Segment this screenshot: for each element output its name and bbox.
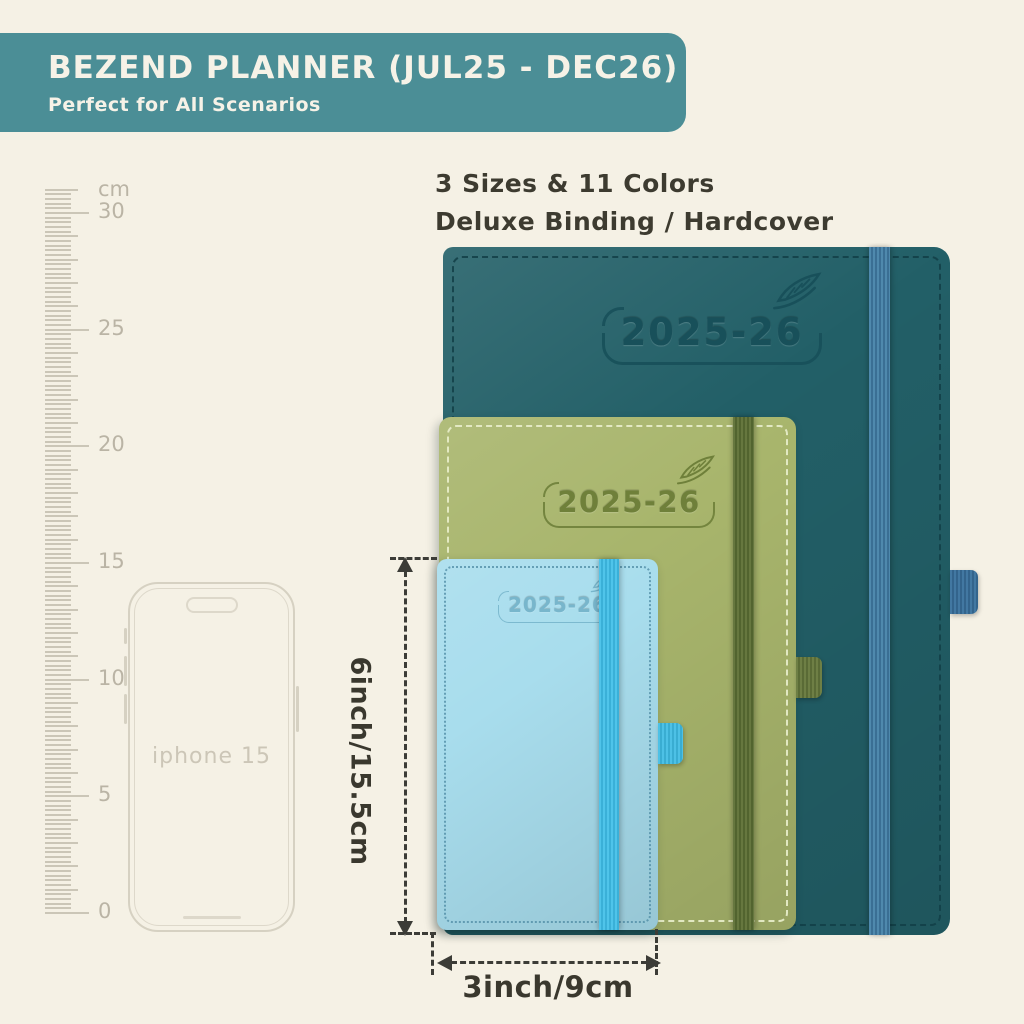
ruler-tick (45, 809, 71, 811)
ruler-tick (45, 879, 71, 881)
ruler-tick (45, 632, 78, 634)
ruler-tick (45, 725, 78, 727)
pen-loop (950, 570, 978, 614)
ruler-tick (45, 268, 71, 270)
ruler-tick (45, 805, 71, 807)
ruler-tick (45, 221, 71, 223)
ruler-tick (45, 319, 71, 321)
ruler-tick (45, 259, 78, 261)
ruler-tick (45, 679, 89, 681)
ruler-tick (45, 329, 89, 331)
ruler-tick (45, 529, 71, 531)
ruler-tick (45, 380, 71, 382)
ruler-label: 10 (98, 666, 125, 690)
ruler-tick (45, 716, 71, 718)
home-indicator (183, 916, 241, 919)
ruler-label: 5 (98, 782, 111, 806)
ruler-tick (45, 833, 71, 835)
ruler-tick (45, 772, 78, 774)
ruler-unit-label: cm (98, 177, 130, 201)
ruler-tick (45, 445, 89, 447)
ruler-tick (45, 366, 71, 368)
ruler-tick (45, 749, 78, 751)
ruler-tick (45, 585, 78, 587)
ruler-tick (45, 847, 71, 849)
height-dimension-arrow (404, 571, 407, 923)
ruler-tick (45, 557, 71, 559)
ruler-tick (45, 315, 71, 317)
action-button (124, 628, 127, 644)
ruler-tick (45, 870, 71, 872)
ruler-tick (45, 856, 71, 858)
ruler-tick (45, 431, 71, 433)
ruler-tick (45, 455, 71, 457)
ruler-tick (45, 707, 71, 709)
arrowhead-left-icon (437, 955, 452, 971)
ruler-tick (45, 912, 89, 914)
ruler-tick (45, 394, 71, 396)
ruler-tick (45, 413, 71, 415)
ruler-tick (45, 739, 71, 741)
ruler-tick (45, 473, 71, 475)
bracket-underline (543, 502, 715, 528)
ruler-tick (45, 721, 71, 723)
height-dimension-label: 6inch/15.5cm (345, 657, 376, 841)
ruler-tick (45, 520, 71, 522)
ruler-tick (45, 361, 71, 363)
ruler-tick (45, 711, 71, 713)
ruler-tick (45, 781, 71, 783)
ruler-tick (45, 277, 71, 279)
ruler-tick (45, 254, 71, 256)
elastic-band (869, 247, 890, 935)
ruler-tick (45, 907, 71, 909)
volume-down-button (124, 694, 127, 724)
ruler-tick (45, 534, 71, 536)
ruler-tick (45, 193, 71, 195)
ruler-tick (45, 543, 71, 545)
ruler-tick (45, 693, 71, 695)
product-infographic: BEZEND PLANNER (JUL25 - DEC26) Perfect f… (0, 0, 1024, 1024)
arrowhead-right-icon (646, 955, 661, 971)
ruler-tick (45, 226, 71, 228)
bracket-underline (602, 333, 822, 366)
ruler-tick (45, 273, 71, 275)
ruler-tick (45, 837, 71, 839)
elastic-band (733, 417, 754, 930)
ruler-tick (45, 385, 71, 387)
ruler-tick (45, 851, 71, 853)
feather-icon (768, 272, 825, 315)
volume-up-button (124, 656, 127, 686)
ruler-tick (45, 795, 89, 797)
ruler-tick (45, 637, 71, 639)
year-emboss: 2025-26 (553, 485, 705, 519)
ruler-tick (45, 357, 71, 359)
ruler-tick (45, 865, 78, 867)
ruler-tick (45, 688, 71, 690)
ruler-tick (45, 459, 71, 461)
ruler-tick (45, 324, 71, 326)
ruler-tick (45, 296, 71, 298)
ruler-tick (45, 497, 71, 499)
planner-cover-small: 2025-26 (437, 559, 658, 930)
year-emboss: 2025-26 (615, 311, 809, 354)
ruler-tick (45, 291, 71, 293)
ruler-tick (45, 371, 71, 373)
ruler-tick (45, 553, 71, 555)
ruler-tick (45, 730, 71, 732)
ruler-tick (45, 506, 71, 508)
pen-loop (796, 657, 822, 698)
ruler-tick (45, 763, 71, 765)
ruler-tick (45, 828, 71, 830)
ruler-tick (45, 483, 71, 485)
ruler-tick (45, 399, 78, 401)
ruler-tick (45, 571, 71, 573)
ruler-tick (45, 660, 71, 662)
ruler-tick (45, 403, 71, 405)
dynamic-island (186, 597, 238, 613)
phone-outline: iphone 15 (128, 582, 295, 932)
ruler-tick (45, 800, 71, 802)
ruler-tick (45, 674, 71, 676)
ruler-tick (45, 875, 71, 877)
ruler-tick (45, 352, 78, 354)
extension-line-top (390, 557, 437, 560)
ruler-tick (45, 525, 71, 527)
ruler-tick (45, 665, 71, 667)
ruler-tick (45, 203, 71, 205)
ruler-tick (45, 767, 71, 769)
ruler-tick (45, 683, 71, 685)
ruler-tick (45, 464, 71, 466)
ruler-tick (45, 282, 78, 284)
ruler-tick (45, 333, 71, 335)
ruler-tick (45, 819, 78, 821)
bracket-arc (498, 591, 509, 601)
extension-line-bottom (390, 932, 436, 935)
ruler-tick (45, 310, 71, 312)
ruler-tick (45, 861, 71, 863)
ruler-tick (45, 786, 71, 788)
ruler-tick (45, 903, 71, 905)
feather-icon (673, 455, 718, 488)
ruler-tick (45, 735, 71, 737)
ruler-tick (45, 576, 71, 578)
ruler-tick (45, 249, 71, 251)
ruler-tick (45, 618, 71, 620)
ruler-tick (45, 744, 71, 746)
ruler-tick (45, 511, 71, 513)
ruler-tick (45, 287, 71, 289)
ruler-tick (45, 235, 78, 237)
ruler-tick (45, 189, 78, 191)
phone-label: iphone 15 (130, 744, 293, 769)
ruler-tick (45, 501, 71, 503)
ruler-label: 0 (98, 899, 111, 923)
ruler-tick (45, 450, 71, 452)
ruler-tick (45, 207, 71, 209)
ruler-tick (45, 245, 71, 247)
ruler-tick (45, 492, 78, 494)
ruler-tick (45, 702, 78, 704)
ruler-tick (45, 590, 71, 592)
ruler-tick (45, 814, 71, 816)
ruler-tick (45, 697, 71, 699)
ruler-tick (45, 898, 71, 900)
elastic-band (599, 559, 619, 930)
ruler-tick (45, 613, 71, 615)
ruler-tick (45, 623, 71, 625)
ruler-tick (45, 408, 71, 410)
year-emboss: 2025-26 (505, 593, 610, 617)
ruler-tick (45, 893, 71, 895)
ruler-tick (45, 646, 71, 648)
ruler-tick (45, 478, 71, 480)
ruler-tick (45, 567, 71, 569)
ruler-tick (45, 609, 78, 611)
ruler-tick (45, 595, 71, 597)
ruler-tick (45, 469, 78, 471)
ruler-tick (45, 212, 89, 214)
ruler-tick (45, 427, 71, 429)
ruler-tick (45, 343, 71, 345)
ruler-tick (45, 581, 71, 583)
ruler-tick (45, 651, 71, 653)
ruler-tick (45, 301, 71, 303)
ruler-tick (45, 842, 78, 844)
ruler-label: 15 (98, 549, 125, 573)
ruler-tick (45, 758, 71, 760)
ruler-tick (45, 198, 71, 200)
power-button (296, 686, 299, 732)
ruler-tick (45, 753, 71, 755)
ruler-tick (45, 548, 71, 550)
ruler-tick (45, 823, 71, 825)
ruler-tick (45, 515, 78, 517)
ruler-tick (45, 441, 71, 443)
ruler-tick (45, 777, 71, 779)
bracket-arc (602, 307, 624, 327)
ruler-tick (45, 422, 78, 424)
ruler-label: 30 (98, 199, 125, 223)
ruler-tick (45, 562, 89, 564)
ruler-tick (45, 305, 78, 307)
ruler-label: 20 (98, 432, 125, 456)
ruler-tick (45, 627, 71, 629)
ruler-tick (45, 347, 71, 349)
ruler-tick (45, 240, 71, 242)
ruler-tick (45, 338, 71, 340)
ruler-tick (45, 487, 71, 489)
ruler-tick (45, 604, 71, 606)
ruler-tick (45, 389, 71, 391)
ruler-tick (45, 539, 78, 541)
ruler-tick (45, 641, 71, 643)
width-dimension-label: 3inch/9cm (452, 970, 644, 1004)
ruler-tick (45, 417, 71, 419)
bracket-arc (543, 482, 560, 497)
pen-loop (658, 723, 683, 764)
ruler-tick (45, 669, 71, 671)
ruler-tick (45, 791, 71, 793)
ruler-tick (45, 263, 71, 265)
ruler-tick (45, 884, 71, 886)
ruler-tick (45, 375, 78, 377)
ruler-tick (45, 889, 78, 891)
ruler-label: 25 (98, 316, 125, 340)
ruler-tick (45, 655, 78, 657)
ruler-tick (45, 231, 71, 233)
ruler-tick (45, 436, 71, 438)
ruler-tick (45, 217, 71, 219)
ruler-tick (45, 599, 71, 601)
extension-line-bottom-left (431, 932, 434, 975)
width-dimension-arrow (451, 961, 647, 964)
